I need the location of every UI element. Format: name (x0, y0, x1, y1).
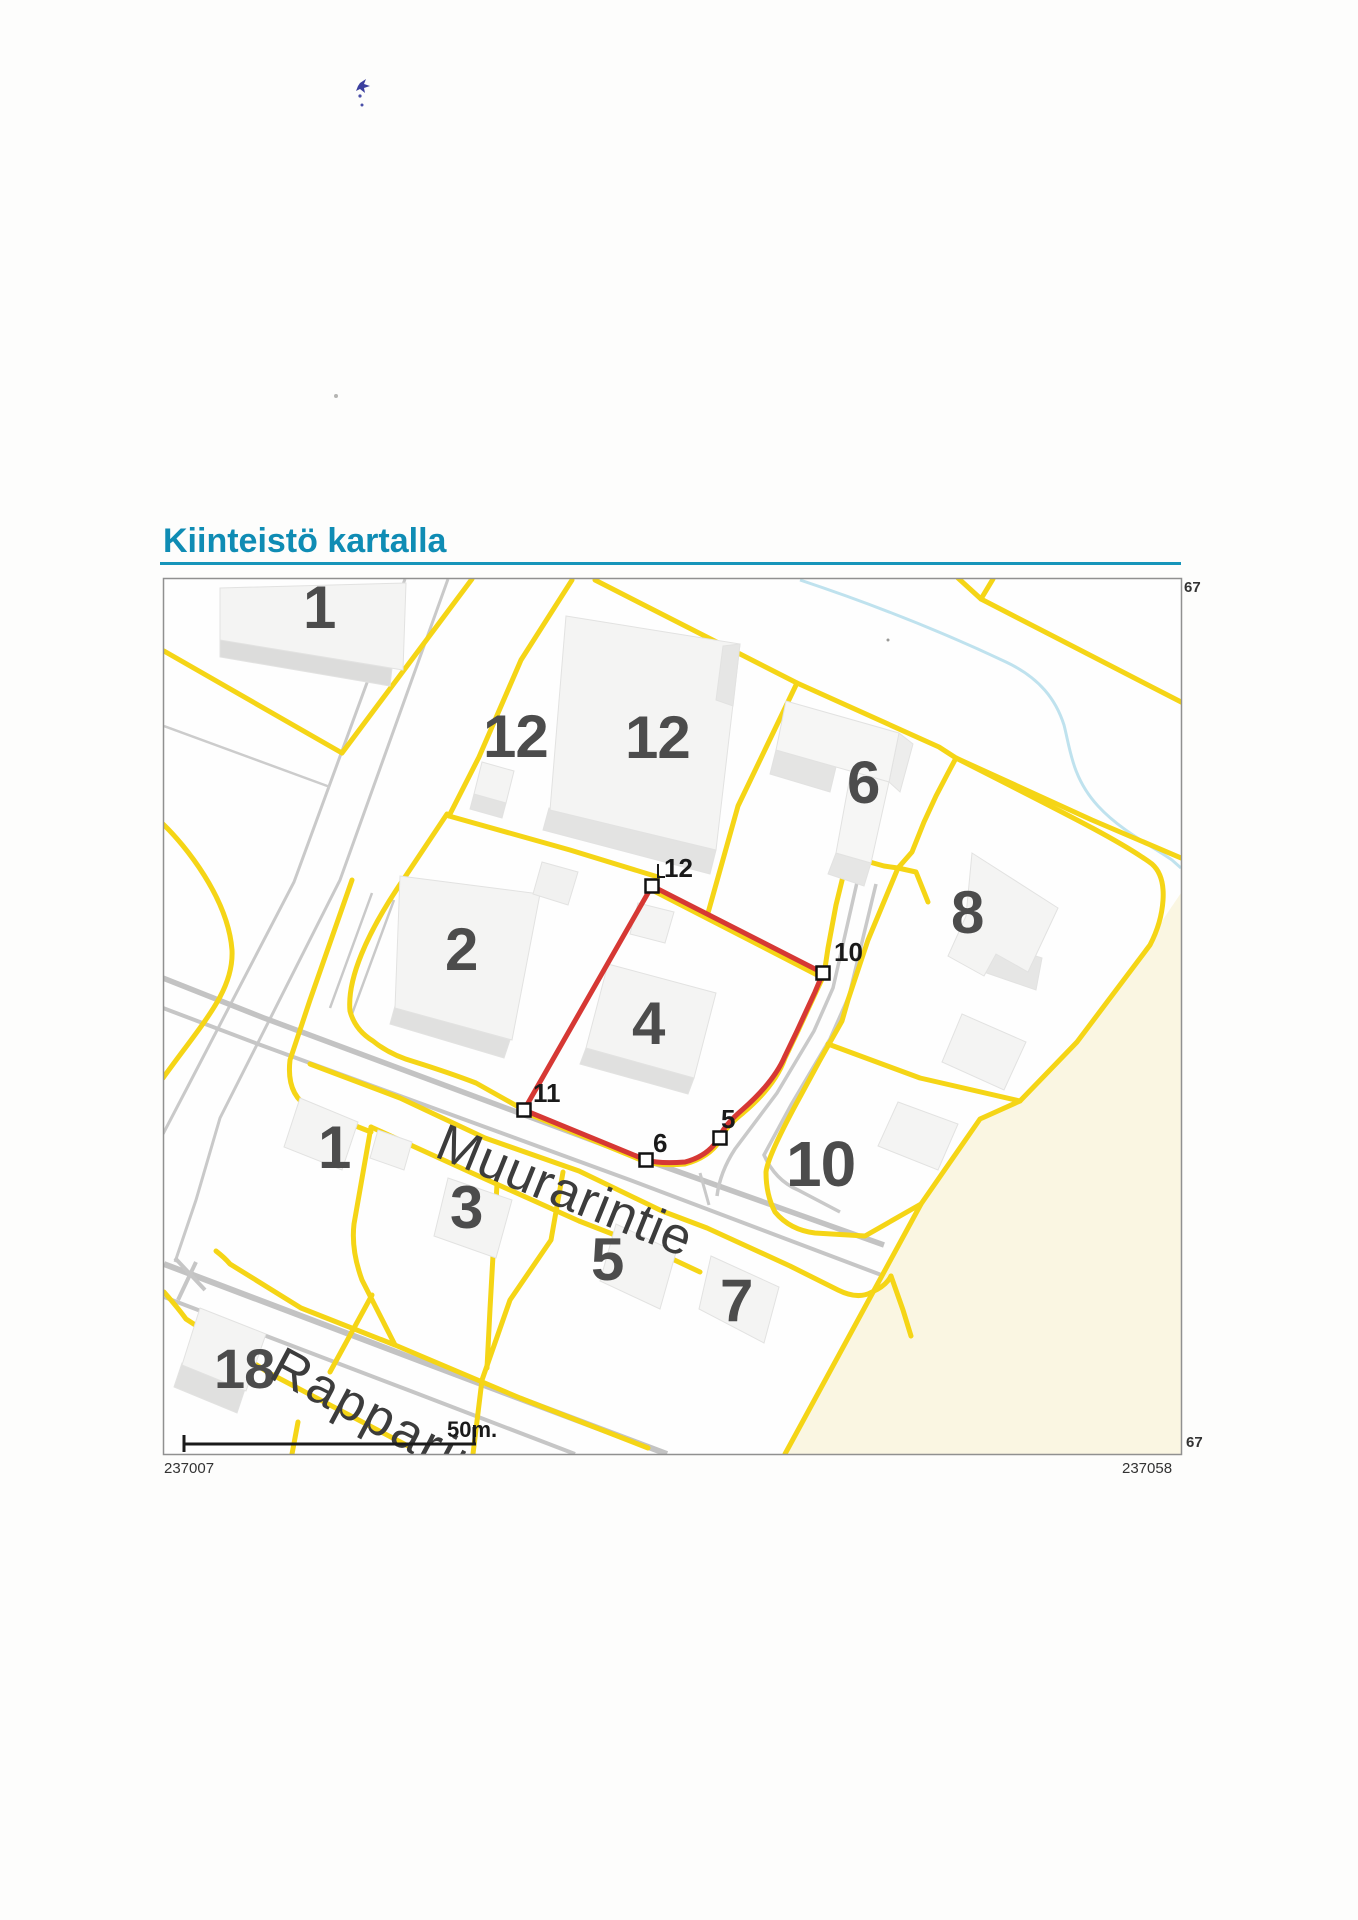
svg-text:237058: 237058 (1122, 1460, 1172, 1477)
svg-text:67: 67 (1184, 579, 1201, 596)
svg-text:18: 18 (214, 1337, 274, 1400)
svg-text:67: 67 (1186, 1434, 1203, 1451)
svg-text:2: 2 (445, 916, 477, 983)
svg-text:50m.: 50m. (447, 1417, 497, 1442)
svg-text:12: 12 (625, 704, 690, 771)
svg-text:11: 11 (533, 1078, 561, 1108)
svg-text:12: 12 (664, 853, 693, 883)
svg-text:10: 10 (786, 1128, 855, 1200)
svg-text:6: 6 (653, 1128, 667, 1158)
svg-text:6: 6 (847, 749, 879, 816)
svg-text:5: 5 (721, 1104, 735, 1134)
svg-text:12: 12 (483, 703, 548, 770)
svg-text:7: 7 (720, 1267, 752, 1334)
svg-text:1: 1 (318, 1114, 350, 1181)
svg-text:8: 8 (951, 879, 983, 946)
svg-text:1: 1 (303, 574, 335, 641)
svg-text:237007: 237007 (164, 1460, 214, 1477)
svg-text:10: 10 (834, 937, 863, 967)
svg-text:4: 4 (632, 990, 666, 1057)
